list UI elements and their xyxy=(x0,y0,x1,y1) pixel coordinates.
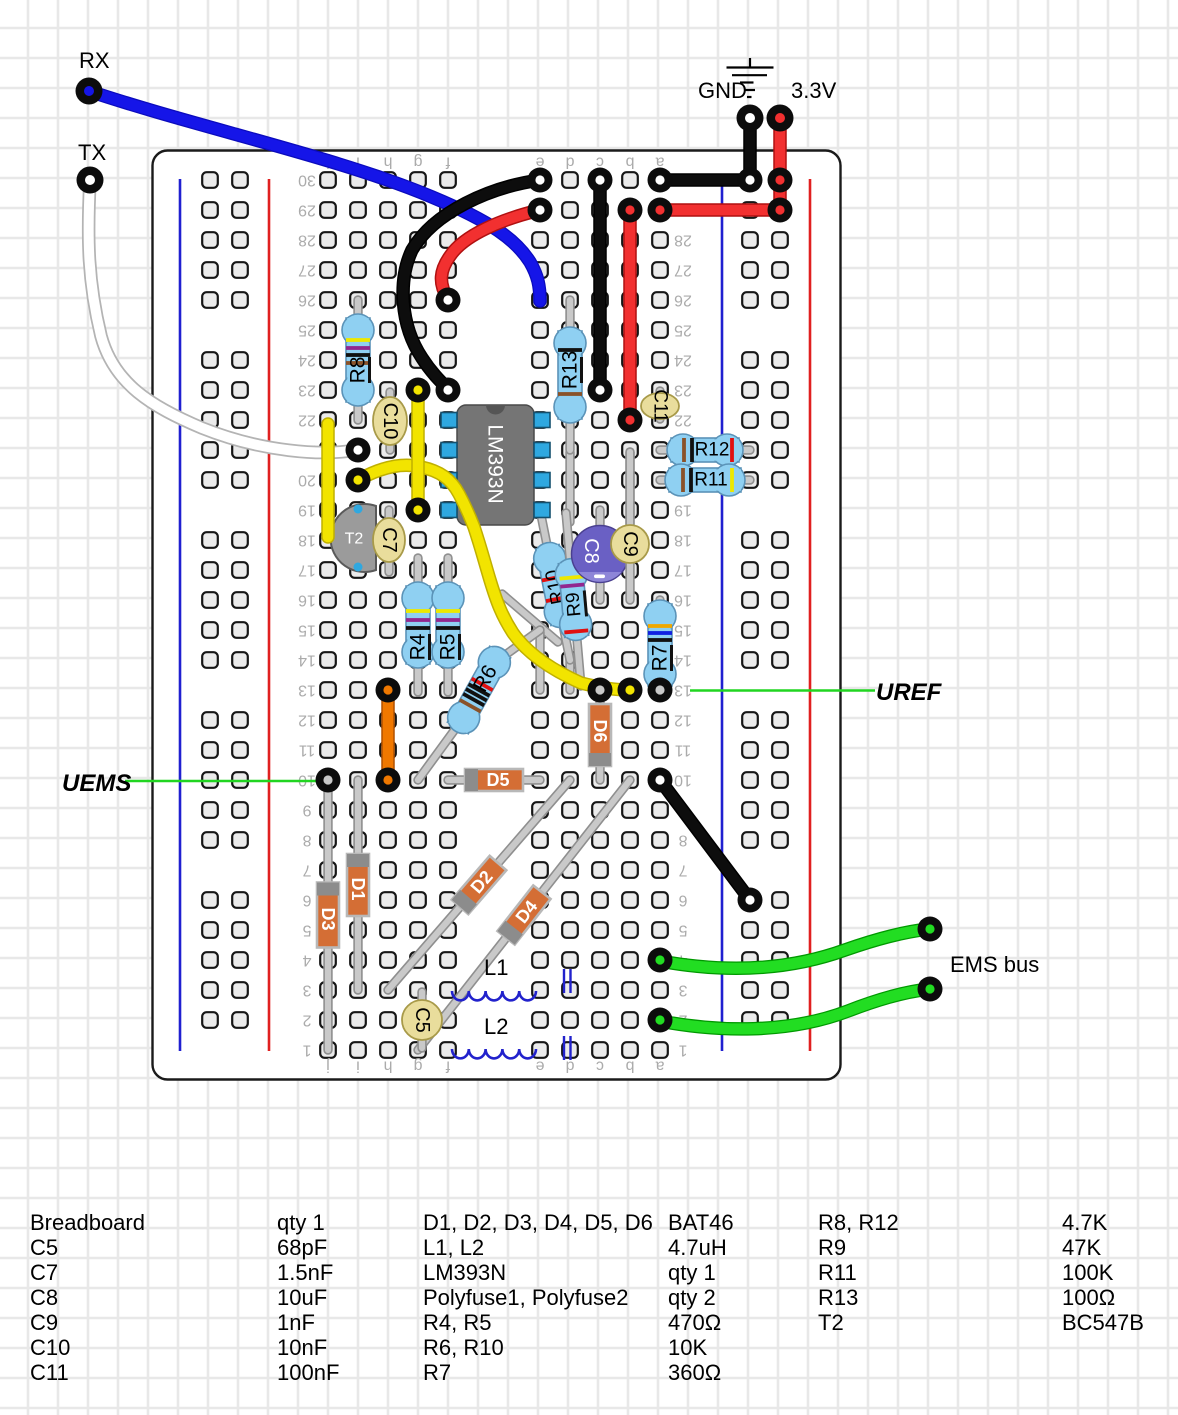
svg-text:LM393N: LM393N xyxy=(423,1260,506,1285)
svg-text:5: 5 xyxy=(302,922,311,939)
svg-text:Breadboard: Breadboard xyxy=(30,1210,145,1235)
svg-text:T2: T2 xyxy=(345,531,364,548)
svg-text:16: 16 xyxy=(298,592,316,609)
svg-text:R4, R5: R4, R5 xyxy=(423,1310,491,1335)
svg-text:68pF: 68pF xyxy=(277,1235,327,1260)
svg-text:23: 23 xyxy=(674,382,692,399)
svg-text:25: 25 xyxy=(674,322,692,339)
svg-text:4.7K: 4.7K xyxy=(1062,1210,1108,1235)
svg-text:4.7uH: 4.7uH xyxy=(668,1235,727,1260)
svg-text:23: 23 xyxy=(298,382,316,399)
svg-text:18: 18 xyxy=(298,532,316,549)
svg-text:360Ω: 360Ω xyxy=(668,1360,721,1385)
svg-text:g: g xyxy=(414,154,423,171)
svg-text:47K: 47K xyxy=(1062,1235,1101,1260)
svg-text:26: 26 xyxy=(298,292,316,309)
svg-text:R7: R7 xyxy=(649,645,672,672)
svg-text:24: 24 xyxy=(674,352,692,369)
svg-text:R9: R9 xyxy=(562,591,585,617)
svg-text:EMS bus: EMS bus xyxy=(950,952,1039,977)
svg-text:20: 20 xyxy=(298,472,316,489)
svg-text:R12: R12 xyxy=(695,440,730,461)
svg-text:22: 22 xyxy=(298,412,316,429)
svg-text:3.3V: 3.3V xyxy=(791,78,837,103)
svg-text:C9: C9 xyxy=(30,1310,58,1335)
svg-text:RX: RX xyxy=(79,48,110,73)
svg-text:C8: C8 xyxy=(580,538,602,564)
svg-text:R4: R4 xyxy=(407,633,430,660)
svg-text:6: 6 xyxy=(678,892,687,909)
svg-text:8: 8 xyxy=(678,832,687,849)
svg-text:i: i xyxy=(356,1058,360,1075)
svg-text:C7: C7 xyxy=(30,1260,58,1285)
svg-text:R13: R13 xyxy=(818,1285,858,1310)
svg-text:R11: R11 xyxy=(694,470,727,491)
svg-text:D1: D1 xyxy=(348,877,368,900)
svg-text:D3: D3 xyxy=(318,907,338,930)
svg-text:24: 24 xyxy=(298,352,316,369)
svg-text:10uF: 10uF xyxy=(277,1285,327,1310)
svg-text:13: 13 xyxy=(674,682,692,699)
svg-text:26: 26 xyxy=(674,292,692,309)
svg-text:R8: R8 xyxy=(347,357,370,384)
svg-text:f: f xyxy=(445,154,450,171)
svg-text:2: 2 xyxy=(302,1012,311,1029)
svg-text:g: g xyxy=(414,1058,423,1075)
svg-text:L2: L2 xyxy=(484,1014,508,1039)
svg-text:16: 16 xyxy=(674,592,692,609)
svg-text:11: 11 xyxy=(675,742,692,759)
svg-text:j: j xyxy=(326,1058,331,1075)
svg-text:27: 27 xyxy=(674,262,692,279)
svg-text:e: e xyxy=(535,1058,544,1075)
svg-text:R11: R11 xyxy=(818,1260,857,1285)
svg-text:C5: C5 xyxy=(411,1007,433,1033)
svg-text:b: b xyxy=(625,154,634,171)
svg-text:13: 13 xyxy=(298,682,316,699)
svg-text:27: 27 xyxy=(298,262,316,279)
svg-text:BAT46: BAT46 xyxy=(668,1210,734,1235)
svg-text:14: 14 xyxy=(298,652,316,669)
svg-text:L1, L2: L1, L2 xyxy=(423,1235,484,1260)
svg-text:28: 28 xyxy=(298,232,316,249)
svg-text:C11: C11 xyxy=(650,389,671,422)
svg-text:1: 1 xyxy=(678,1042,687,1059)
svg-text:D6: D6 xyxy=(590,719,610,742)
svg-text:29: 29 xyxy=(298,202,316,219)
svg-text:15: 15 xyxy=(674,622,692,639)
svg-text:470Ω: 470Ω xyxy=(668,1310,721,1335)
svg-text:18: 18 xyxy=(674,532,692,549)
svg-text:TX: TX xyxy=(78,140,106,165)
svg-text:9: 9 xyxy=(302,802,311,819)
svg-text:UREF: UREF xyxy=(876,679,943,706)
svg-text:D5: D5 xyxy=(486,770,509,790)
svg-text:7: 7 xyxy=(678,862,687,879)
svg-text:R6, R10: R6, R10 xyxy=(423,1335,504,1360)
svg-text:1nF: 1nF xyxy=(277,1310,315,1335)
svg-text:12: 12 xyxy=(298,712,316,729)
svg-text:10K: 10K xyxy=(668,1335,707,1360)
svg-text:d: d xyxy=(566,1058,575,1075)
svg-text:11: 11 xyxy=(299,742,316,759)
svg-text:1.5nF: 1.5nF xyxy=(277,1260,333,1285)
svg-text:28: 28 xyxy=(674,232,692,249)
svg-text:5: 5 xyxy=(678,922,687,939)
svg-text:C7: C7 xyxy=(378,527,400,553)
svg-text:D1, D2, D3, D4, D5, D6: D1, D2, D3, D4, D5, D6 xyxy=(423,1210,653,1235)
svg-text:6: 6 xyxy=(302,892,311,909)
svg-text:qty 2: qty 2 xyxy=(668,1285,716,1310)
svg-text:qty 1: qty 1 xyxy=(668,1260,716,1285)
svg-text:C9: C9 xyxy=(619,531,641,557)
svg-text:f: f xyxy=(445,1058,450,1075)
svg-text:a: a xyxy=(655,1058,664,1075)
svg-text:C8: C8 xyxy=(30,1285,58,1310)
svg-text:15: 15 xyxy=(298,622,316,639)
svg-text:R13: R13 xyxy=(559,351,582,390)
svg-text:10: 10 xyxy=(674,772,692,789)
svg-text:19: 19 xyxy=(298,502,316,519)
svg-text:25: 25 xyxy=(298,322,316,339)
svg-text:b: b xyxy=(625,1058,634,1075)
svg-text:17: 17 xyxy=(298,562,316,579)
svg-text:30: 30 xyxy=(298,172,316,189)
svg-text:14: 14 xyxy=(674,652,692,669)
svg-text:L1: L1 xyxy=(484,955,508,980)
svg-text:LM393N: LM393N xyxy=(484,424,507,503)
svg-text:C10: C10 xyxy=(379,403,401,440)
svg-text:h: h xyxy=(384,1058,393,1075)
svg-text:17: 17 xyxy=(674,562,692,579)
svg-text:4: 4 xyxy=(302,952,311,969)
svg-text:d: d xyxy=(566,154,575,171)
svg-text:10nF: 10nF xyxy=(277,1335,327,1360)
svg-text:100nF: 100nF xyxy=(277,1360,339,1385)
svg-text:GND: GND xyxy=(698,78,747,103)
svg-text:7: 7 xyxy=(302,862,311,879)
svg-text:R8, R12: R8, R12 xyxy=(818,1210,899,1235)
svg-text:R5: R5 xyxy=(437,634,460,661)
svg-text:22: 22 xyxy=(674,412,692,429)
svg-text:UEMS: UEMS xyxy=(62,770,131,797)
svg-text:1: 1 xyxy=(302,1042,311,1059)
svg-text:R7: R7 xyxy=(423,1360,451,1385)
svg-text:R9: R9 xyxy=(818,1235,846,1260)
svg-text:BC547B: BC547B xyxy=(1062,1310,1144,1335)
svg-text:100K: 100K xyxy=(1062,1260,1114,1285)
svg-text:C11: C11 xyxy=(30,1360,69,1385)
svg-text:19: 19 xyxy=(674,502,692,519)
svg-text:qty 1: qty 1 xyxy=(277,1210,325,1235)
svg-text:Polyfuse1, Polyfuse2: Polyfuse1, Polyfuse2 xyxy=(423,1285,628,1310)
svg-text:100Ω: 100Ω xyxy=(1062,1285,1115,1310)
svg-text:12: 12 xyxy=(674,712,692,729)
svg-text:c: c xyxy=(596,1058,604,1075)
svg-text:3: 3 xyxy=(302,982,311,999)
svg-text:8: 8 xyxy=(302,832,311,849)
svg-text:h: h xyxy=(384,154,393,171)
svg-text:C10: C10 xyxy=(30,1335,70,1360)
svg-text:T2: T2 xyxy=(818,1310,844,1335)
svg-text:3: 3 xyxy=(678,982,687,999)
svg-text:C5: C5 xyxy=(30,1235,58,1260)
